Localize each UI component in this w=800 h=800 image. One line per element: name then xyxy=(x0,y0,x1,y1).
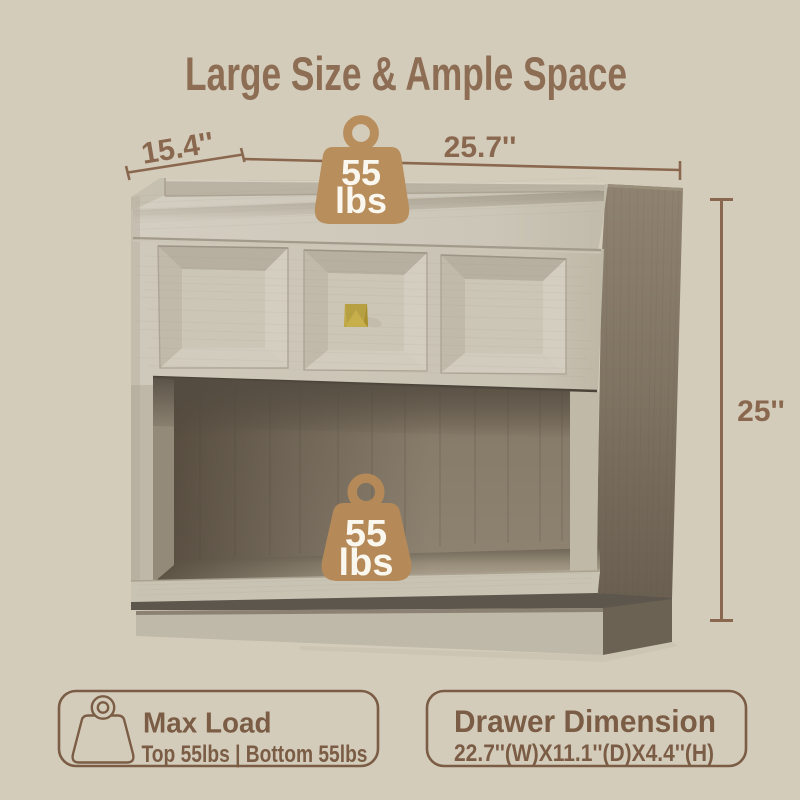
svg-text:25.7'': 25.7'' xyxy=(444,131,517,164)
svg-text:22.7''(W)X11.1''(D)X4.4''(H): 22.7''(W)X11.1''(D)X4.4''(H) xyxy=(454,740,714,767)
svg-text:Top 55lbs | Bottom 55lbs: Top 55lbs | Bottom 55lbs xyxy=(142,741,368,768)
svg-text:lbs: lbs xyxy=(335,180,387,221)
svg-text:Max Load: Max Load xyxy=(143,708,272,740)
svg-text:25'': 25'' xyxy=(737,395,785,428)
svg-text:lbs: lbs xyxy=(339,542,394,584)
svg-text:Large Size & Ample Space: Large Size & Ample Space xyxy=(185,47,627,100)
svg-text:Drawer Dimension: Drawer Dimension xyxy=(454,703,716,739)
